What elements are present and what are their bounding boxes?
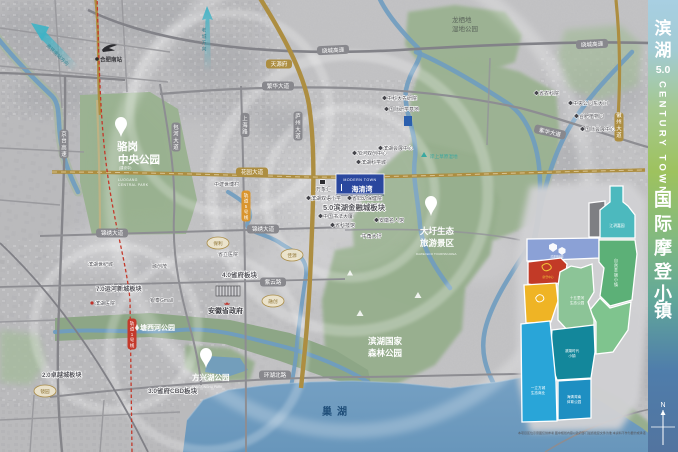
svg-text:岸上草原湿地: 岸上草原湿地 bbox=[430, 153, 458, 160]
svg-text:滨湖医院: 滨湖医院 bbox=[95, 300, 115, 307]
svg-text:海清湾: 海清湾 bbox=[352, 185, 373, 194]
svg-text:◆省科技馆: ◆省科技馆 bbox=[330, 222, 355, 229]
svg-text:◆滨湖双语小学: ◆滨湖双语小学 bbox=[306, 195, 341, 202]
svg-text:森林公园: 森林公园 bbox=[368, 348, 402, 358]
svg-text:登: 登 bbox=[653, 261, 673, 282]
svg-text:大: 大 bbox=[616, 124, 622, 132]
svg-text:城: 城 bbox=[202, 33, 207, 40]
svg-text:镇: 镇 bbox=[614, 282, 618, 287]
svg-text:滨湖世纪城: 滨湖世纪城 bbox=[88, 261, 113, 268]
svg-text:海: 海 bbox=[242, 121, 248, 129]
svg-text:巢湖: 巢湖 bbox=[321, 405, 352, 418]
svg-text:大圩生态: 大圩生态 bbox=[420, 226, 455, 236]
svg-text:DAWEI ECO TOURISM AREA: DAWEI ECO TOURISM AREA bbox=[416, 252, 456, 256]
svg-text:合肥南站: 合肥南站 bbox=[100, 56, 123, 64]
svg-text:州: 州 bbox=[295, 121, 300, 127]
svg-text:银泰Gmall: 银泰Gmall bbox=[150, 297, 173, 304]
svg-text:生态公园: 生态公园 bbox=[570, 300, 585, 305]
svg-text:道: 道 bbox=[616, 131, 622, 139]
svg-text:龙栖地: 龙栖地 bbox=[452, 15, 472, 24]
svg-text:天源府: 天源府 bbox=[271, 60, 288, 68]
svg-text:保利: 保利 bbox=[213, 240, 223, 247]
svg-text:速: 速 bbox=[61, 151, 67, 158]
svg-text:湖: 湖 bbox=[655, 41, 672, 60]
svg-text:(建设中): (建设中) bbox=[119, 165, 131, 170]
svg-text:摩: 摩 bbox=[654, 237, 672, 258]
svg-text:高: 高 bbox=[61, 143, 67, 151]
svg-text:湿地公园: 湿地公园 bbox=[452, 24, 478, 33]
svg-text:江玥嘉园: 江玥嘉园 bbox=[609, 223, 624, 228]
svg-text:紫云路: 紫云路 bbox=[265, 278, 282, 286]
svg-text:镇: 镇 bbox=[654, 300, 672, 321]
svg-text:生态商业: 生态商业 bbox=[531, 390, 546, 395]
svg-text:体育公园: 体育公园 bbox=[567, 399, 582, 404]
svg-text:5: 5 bbox=[245, 204, 248, 209]
svg-text:7.0运河新城板块: 7.0运河新城板块 bbox=[96, 285, 143, 293]
svg-text:环湖北路: 环湖北路 bbox=[264, 371, 287, 379]
svg-text:摩登中心: 摩登中心 bbox=[542, 275, 553, 279]
svg-text:◆合肥植物园: ◆合肥植物园 bbox=[574, 113, 604, 120]
svg-text:N: N bbox=[660, 402, 665, 409]
svg-text:大: 大 bbox=[173, 136, 179, 144]
svg-text:花园大道: 花园大道 bbox=[241, 168, 264, 176]
svg-text:道: 道 bbox=[173, 143, 179, 151]
svg-text:MODERN TOWN: MODERN TOWN bbox=[343, 178, 376, 182]
svg-text:老: 老 bbox=[202, 27, 207, 34]
svg-text:繁华大道: 繁华大道 bbox=[267, 82, 290, 90]
svg-text:◆滨湖科学城: ◆滨湖科学城 bbox=[356, 159, 386, 166]
svg-text:十五里河: 十五里河 bbox=[570, 295, 585, 300]
svg-text:京: 京 bbox=[61, 130, 67, 138]
svg-text:大: 大 bbox=[295, 125, 301, 133]
svg-text:万象汇: 万象汇 bbox=[316, 186, 331, 193]
svg-text:线: 线 bbox=[130, 342, 135, 348]
svg-text:◆安徽名人馆: ◆安徽名人馆 bbox=[374, 217, 404, 224]
svg-text:方兴湖公园: 方兴湖公园 bbox=[192, 372, 230, 382]
svg-text:包: 包 bbox=[173, 123, 179, 131]
svg-text:LUOGANG: LUOGANG bbox=[118, 178, 138, 182]
svg-text:4.0省府板块: 4.0省府板块 bbox=[222, 270, 258, 279]
svg-text:◆国际研学基地: ◆国际研学基地 bbox=[384, 106, 419, 113]
svg-text:上: 上 bbox=[242, 115, 248, 123]
svg-text:◆省妇幼保健院: ◆省妇幼保健院 bbox=[347, 195, 382, 202]
svg-text:◆中央公园东大门: ◆中央公园东大门 bbox=[568, 100, 608, 107]
svg-text:小镇: 小镇 bbox=[568, 353, 576, 358]
svg-text:塘西河公园: 塘西河公园 bbox=[140, 323, 175, 332]
svg-text:镜园: 镜园 bbox=[40, 388, 50, 395]
svg-text:中建世博村: 中建世博村 bbox=[214, 181, 239, 188]
svg-text:1: 1 bbox=[131, 332, 134, 337]
svg-text:·牛角大圩: ·牛角大圩 bbox=[360, 233, 382, 240]
svg-text:骆岗: 骆岗 bbox=[117, 140, 138, 153]
svg-text:滨湖时代: 滨湖时代 bbox=[565, 348, 580, 353]
svg-text:锦绣大道: 锦绣大道 bbox=[101, 229, 124, 237]
svg-text:河: 河 bbox=[173, 130, 179, 138]
svg-text:◆省农科院: ◆省农科院 bbox=[534, 90, 559, 97]
svg-text:路: 路 bbox=[242, 127, 248, 135]
svg-text:CENTURY TOWN: CENTURY TOWN bbox=[657, 81, 668, 196]
svg-text:滨湖国家: 滨湖国家 bbox=[368, 336, 403, 346]
svg-text:◆加河双创中心: ◆加河双创中心 bbox=[352, 150, 387, 157]
svg-text:向: 向 bbox=[202, 45, 207, 52]
svg-text:海清湾南: 海清湾南 bbox=[567, 394, 582, 399]
svg-text:锦绣大道: 锦绣大道 bbox=[252, 225, 275, 233]
svg-text:方: 方 bbox=[202, 39, 207, 46]
svg-text:际: 际 bbox=[654, 214, 672, 234]
svg-text:国: 国 bbox=[654, 190, 672, 210]
svg-text:省立医院: 省立医院 bbox=[218, 251, 238, 258]
svg-text:徽: 徽 bbox=[616, 111, 622, 119]
svg-text:5.0滨湖金融城板块: 5.0滨湖金融城板块 bbox=[323, 203, 386, 212]
svg-text:融创茂: 融创茂 bbox=[152, 263, 167, 270]
svg-text:台: 台 bbox=[61, 137, 66, 145]
svg-text:◆中国书法大厦: ◆中国书法大厦 bbox=[318, 213, 353, 220]
svg-text:庐: 庐 bbox=[295, 112, 301, 120]
svg-text:5.0: 5.0 bbox=[656, 64, 671, 76]
svg-text:◆中科大先研院: ◆中科大先研院 bbox=[382, 95, 417, 102]
svg-text:道: 道 bbox=[295, 132, 301, 140]
svg-text:3.0省府CBD板块: 3.0省府CBD板块 bbox=[148, 386, 198, 395]
svg-text:线: 线 bbox=[244, 214, 249, 220]
svg-text:中央公园: 中央公园 bbox=[118, 153, 160, 166]
svg-text:融创: 融创 bbox=[268, 298, 278, 305]
svg-text:佳源: 佳源 bbox=[287, 252, 297, 259]
svg-text:州: 州 bbox=[616, 120, 621, 126]
svg-text:◆国际会展中心: ◆国际会展中心 bbox=[580, 126, 615, 133]
svg-text:一立方城: 一立方城 bbox=[531, 385, 546, 390]
svg-text:CENTRAL PARK: CENTRAL PARK bbox=[118, 183, 149, 187]
svg-text:旅游景区: 旅游景区 bbox=[419, 238, 455, 248]
svg-text:安徽省政府: 安徽省政府 bbox=[208, 306, 243, 315]
svg-text:本项目区位示意图仅供参考 图中规划内容以政府部门最终批复文件: 本项目区位示意图仅供参考 图中规划内容以政府部门最终批复文件为准 本资料不作为要… bbox=[518, 430, 646, 435]
svg-text:滨: 滨 bbox=[655, 18, 672, 38]
svg-text:2.0卓越城板块: 2.0卓越城板块 bbox=[42, 371, 82, 379]
